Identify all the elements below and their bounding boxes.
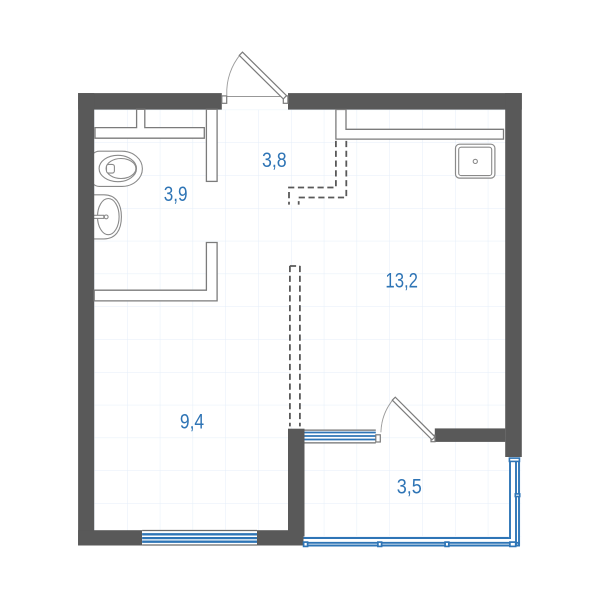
- svg-text:13,2: 13,2: [385, 270, 418, 293]
- svg-text:9,4: 9,4: [180, 411, 205, 434]
- svg-text:3,8: 3,8: [262, 149, 287, 172]
- svg-text:3,5: 3,5: [397, 476, 422, 499]
- svg-text:3,9: 3,9: [164, 183, 188, 206]
